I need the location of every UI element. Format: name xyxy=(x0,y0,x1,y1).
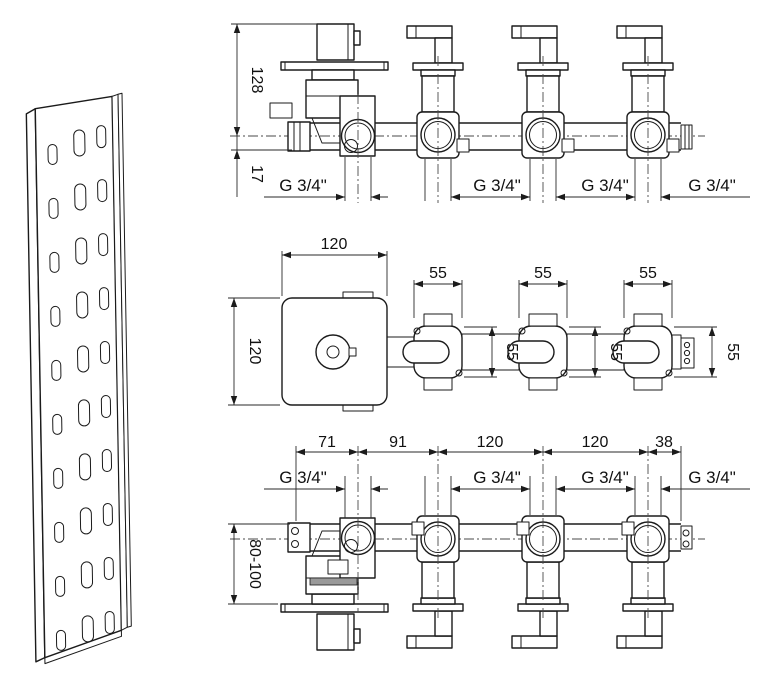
front-port-labels: G 3/4" G 3/4" G 3/4" G 3/4" xyxy=(264,176,750,200)
bottom-port-label-4: G 3/4" xyxy=(688,468,736,487)
dim-block-height: 120 xyxy=(228,298,280,405)
lever-valve-bottom-2 xyxy=(512,516,568,648)
lever-valve-front-2 xyxy=(512,26,568,158)
bottom-port-label-3: G 3/4" xyxy=(581,468,629,487)
bottom-port-labels: G 3/4" G 3/4" G 3/4" G 3/4" xyxy=(264,468,750,492)
dim-text-120a: 120 xyxy=(477,434,504,451)
rail-face xyxy=(35,96,122,657)
svg-text:55: 55 xyxy=(429,265,447,282)
dim-text-71: 71 xyxy=(318,434,336,451)
dim-mount-depth: 80-100 xyxy=(228,524,290,604)
front-view: 128 17 G 3/4" G 3/4" G 3/4" G 3/4" xyxy=(230,24,750,203)
svg-text:55: 55 xyxy=(503,343,520,361)
dim-valve-width-2: 55 xyxy=(519,265,567,318)
bottom-port-label-2: G 3/4" xyxy=(473,468,521,487)
bottom-view: 71 91 120 120 38 80-100 G 3/4" G 3/4" xyxy=(228,434,750,650)
dim-text-block-width: 120 xyxy=(321,236,348,253)
plan-end-thread xyxy=(681,338,694,368)
lever-valve-front-1 xyxy=(407,26,463,158)
lever-valve-front-3 xyxy=(617,26,673,158)
front-port-label-1: G 3/4" xyxy=(279,176,327,195)
svg-text:55: 55 xyxy=(724,343,741,361)
front-port-label-2: G 3/4" xyxy=(473,176,521,195)
dim-text-128: 128 xyxy=(248,67,265,94)
mounting-rail xyxy=(26,93,132,664)
dim-text-38: 38 xyxy=(655,434,673,451)
dim-text-120b: 120 xyxy=(582,434,609,451)
svg-text:55: 55 xyxy=(534,265,552,282)
front-port-label-4: G 3/4" xyxy=(688,176,736,195)
thermo-side-tab-bottom xyxy=(328,560,348,574)
svg-text:55: 55 xyxy=(607,343,624,361)
thermo-gasket xyxy=(310,578,357,585)
bottom-port-label-1: G 3/4" xyxy=(279,468,327,487)
technical-drawing: 128 17 G 3/4" G 3/4" G 3/4" G 3/4" xyxy=(0,0,762,676)
plan-end-neck xyxy=(672,335,681,369)
dim-valve-width-1: 55 xyxy=(414,265,462,318)
dim-text-block-height: 120 xyxy=(246,338,263,365)
svg-text:55: 55 xyxy=(639,265,657,282)
front-inlet-nipple xyxy=(288,122,310,151)
lever-valve-bottom-1 xyxy=(407,516,463,648)
lever-valve-bottom-3 xyxy=(617,516,673,648)
dim-text-80-100: 80-100 xyxy=(246,539,263,589)
valve-plan-1 xyxy=(403,314,462,390)
dim-block-width: 120 xyxy=(282,236,387,296)
dim-text-91: 91 xyxy=(389,434,407,451)
front-port-label-3: G 3/4" xyxy=(581,176,629,195)
dim-text-17: 17 xyxy=(248,165,265,183)
drawing-canvas: 128 17 G 3/4" G 3/4" G 3/4" G 3/4" xyxy=(0,0,762,676)
bottom-end-thread xyxy=(681,526,692,549)
front-end-thread xyxy=(681,125,692,149)
thermostat-box-plan xyxy=(282,292,387,411)
thermo-side-tab xyxy=(270,103,292,118)
knob-notch xyxy=(349,348,356,356)
bottom-inlet-nipple xyxy=(288,523,310,552)
plan-view: 120 120 55 55 55 xyxy=(228,236,741,411)
dim-valve-width-3: 55 xyxy=(624,265,672,318)
